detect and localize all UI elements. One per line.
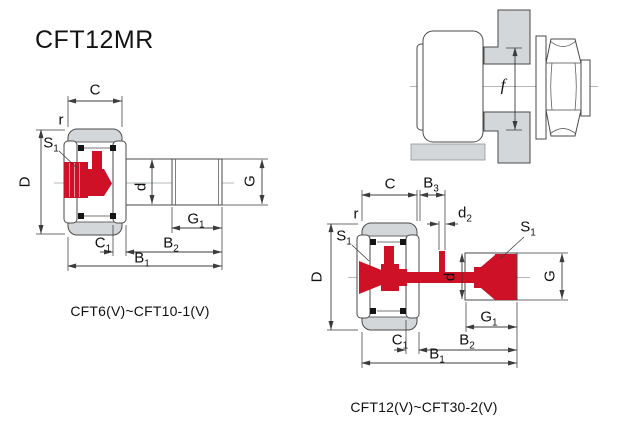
dim-label-G-right: G: [543, 270, 562, 282]
caption-right-figure: CFT12(V)~CFT30-2(V): [350, 399, 497, 415]
caption-left-figure: CFT6(V)~CFT10-1(V): [70, 303, 209, 319]
dim-label-d-left: d: [134, 183, 153, 191]
hex-nut: [546, 39, 581, 136]
dim-label-G1-right: G1: [480, 310, 497, 329]
seal: [110, 145, 116, 151]
seal: [400, 308, 406, 314]
dim-label-B3-right: B3: [423, 176, 439, 195]
seal: [370, 308, 376, 314]
dim-label-G-left: G: [243, 175, 262, 187]
dim-label-C1-right: C1: [392, 333, 408, 352]
dim-label-s1-right-right: S1: [520, 220, 536, 239]
seal: [400, 239, 406, 245]
dim-label-C1-left: C1: [95, 236, 111, 255]
dim-label-r-right: r: [354, 207, 359, 226]
thread-section: [172, 159, 222, 205]
track-surface: [411, 144, 485, 160]
seal: [78, 213, 84, 219]
dim-label-c-left: C: [90, 83, 101, 102]
dim-label-c-right: C: [385, 177, 396, 196]
roller: [423, 31, 483, 142]
dim-label-D-left: D: [18, 177, 37, 188]
seal: [370, 239, 376, 245]
dim-label-G1-left: G1: [187, 212, 204, 231]
dim-label-B1-left: B1: [134, 251, 150, 270]
housing-plate-lower: [484, 112, 530, 163]
dim-label-s1-right-left: S1: [336, 229, 352, 248]
washer: [536, 36, 546, 139]
side-plate-right: [113, 141, 126, 223]
dim-label-s1-left: S1: [43, 136, 59, 155]
dim-label-d2-right: d2: [458, 206, 472, 225]
catalog-page: CFT12MR C r S1 D d G G1 C1 B2 B1 CFT6(V)…: [0, 0, 640, 440]
housing-plate-upper: [484, 10, 530, 64]
dim-label-d-right: d: [443, 273, 462, 281]
dim-label-r-left: r: [59, 113, 64, 132]
stud-end: [581, 60, 590, 116]
seal: [78, 145, 84, 151]
seal: [110, 213, 116, 219]
page-title: CFT12MR: [35, 26, 154, 55]
dim-label-B2-right: B2: [459, 333, 475, 352]
dim-label-B1-right: B1: [429, 347, 445, 366]
dim-label-B2-left: B2: [163, 236, 179, 255]
dim-label-f-mount: f: [501, 76, 506, 97]
dim-label-D-right: D: [310, 272, 329, 283]
technical-drawing: [0, 0, 640, 440]
